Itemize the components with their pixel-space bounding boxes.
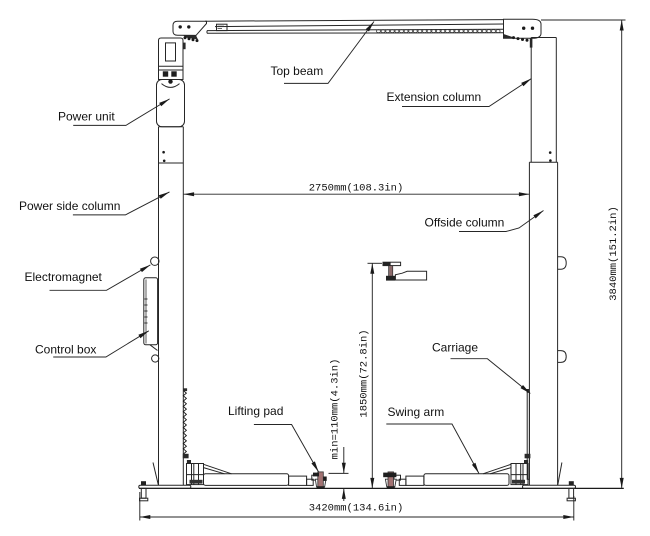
svg-text:Lifting pad: Lifting pad [228,404,283,418]
svg-text:Electromagnet: Electromagnet [25,270,103,284]
svg-text:Control box: Control box [35,342,96,356]
svg-text:Extension column: Extension column [387,90,482,104]
svg-text:Top beam: Top beam [271,64,324,78]
svg-text:Power unit: Power unit [58,110,115,124]
svg-text:1850mm(72.8in): 1850mm(72.8in) [359,329,371,417]
svg-text:3840mm(151.2in): 3840mm(151.2in) [608,206,620,301]
svg-text:Power side column: Power side column [19,199,120,213]
svg-text:3420mm(134.6in): 3420mm(134.6in) [309,503,404,515]
svg-text:Swing arm: Swing arm [388,405,445,419]
svg-text:min=110mm(4.3in): min=110mm(4.3in) [330,359,342,460]
svg-text:Carriage: Carriage [432,341,478,355]
svg-text:2750mm(108.3in): 2750mm(108.3in) [309,183,404,195]
svg-text:Offside column: Offside column [425,216,505,230]
